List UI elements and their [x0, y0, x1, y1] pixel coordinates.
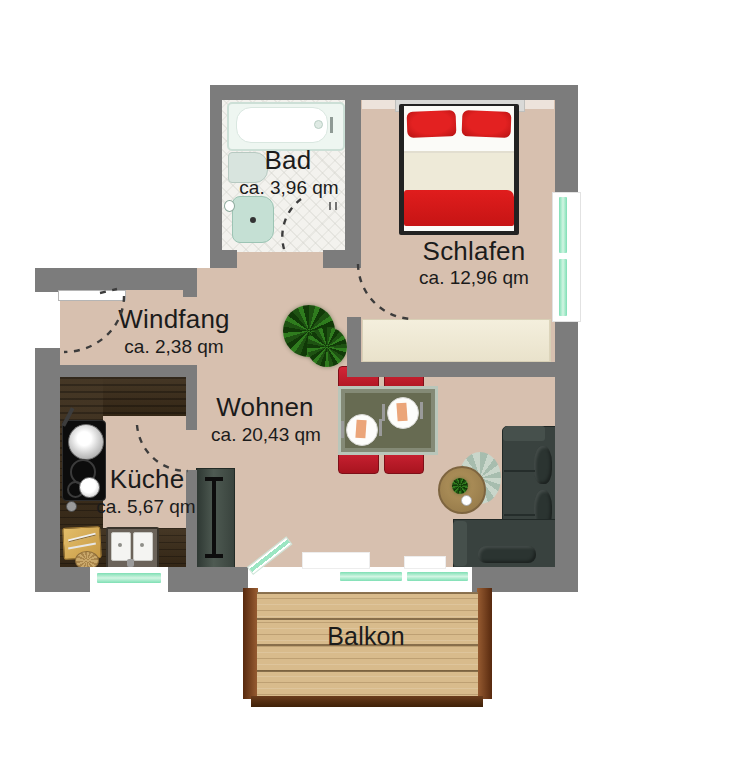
sink-faucet-icon [127, 559, 134, 567]
sliding-panel-2 [404, 556, 446, 569]
bed-pillow-left-icon [407, 110, 457, 138]
bathtub-drain [314, 120, 323, 129]
cutlery-2-left [382, 404, 385, 421]
cup-icon [461, 495, 472, 506]
room-label-schlafen: Schlafen [423, 238, 526, 264]
wall-kitchen-right-lower [186, 470, 197, 592]
floor-plan: Bad ca. 3,96 qm Schlafen ca. 12,96 qm Wi… [0, 0, 729, 757]
room-area-schlafen: ca. 12,96 qm [419, 268, 529, 287]
room-area-wohnen: ca. 20,43 qm [211, 425, 321, 444]
bed-pillow-right-icon [462, 110, 512, 138]
balcony-door-glass-left [340, 572, 402, 581]
sofa-lumbar-pillow [478, 546, 536, 563]
balcony-frame-left [243, 588, 258, 699]
stove-knob [66, 501, 77, 512]
sofa-seat-divider-1 [504, 470, 535, 472]
wall-kitchen-right-upper [186, 377, 197, 430]
bed-sheet [404, 151, 514, 194]
coffee-table-plant-icon [452, 478, 468, 494]
balcony-door-glass-right [407, 572, 468, 581]
entrance-opening [33, 292, 60, 348]
room-area-windfang: ca. 2,38 qm [124, 337, 223, 356]
room-label-kueche: Küche [110, 466, 185, 492]
room-label-bad: Bad [265, 147, 312, 173]
bed-blanket [404, 190, 514, 226]
napkin-2 [396, 403, 407, 422]
cabinet-handle-top [205, 477, 223, 481]
pan-icon [68, 424, 104, 460]
napkin-1 [355, 420, 366, 439]
cabinet-handle-bar [212, 479, 216, 558]
plant-icon-2 [307, 327, 347, 367]
sofa-seat-divider-2 [504, 514, 535, 516]
sink-drain-right [140, 543, 144, 547]
pot-icon [79, 477, 100, 498]
sink-drain-left [118, 543, 122, 547]
sliding-panel [302, 552, 370, 569]
wardrobe [362, 319, 551, 362]
toilet-roll-icon [224, 200, 235, 212]
cabinet-handle-bottom [205, 554, 223, 558]
wall-windfang-top [35, 268, 190, 290]
room-area-bad: ca. 3,96 qm [239, 178, 338, 197]
wall-right [555, 85, 578, 580]
wall-bath-bottom-left [210, 250, 237, 268]
balcony-bottom-bar [251, 696, 483, 707]
wall-bath-left [210, 85, 222, 268]
wall-windfang-stub [183, 268, 197, 297]
room-label-windfang: Windfang [118, 306, 229, 332]
sofa-armrest-left [453, 521, 467, 566]
sofa-armrest-top [503, 426, 545, 441]
wall-bath-bedroom [345, 95, 361, 268]
wall-left-lower [35, 348, 60, 592]
wall-kitchen-top [35, 365, 197, 377]
sofa-back-cushion-1 [534, 446, 552, 484]
kitchen-window-glass [97, 573, 161, 583]
cutlery-1-left [341, 421, 344, 438]
bathtub-faucet-icon [330, 117, 333, 133]
cutlery-2-right [420, 402, 423, 419]
bedroom-window-glass-upper [559, 197, 567, 253]
cutlery-1-right [379, 419, 382, 436]
entrance-door-leaf [58, 290, 126, 301]
bedroom-window-glass-lower [559, 259, 567, 316]
toilet-flush-dot [250, 217, 256, 223]
balcony-frame-right [477, 588, 492, 699]
wall-bedroom-living [347, 362, 556, 377]
room-label-balkon: Balkon [327, 624, 405, 649]
wall-top [210, 85, 578, 100]
room-area-kueche: ca. 5,67 qm [96, 497, 195, 516]
room-label-wohnen: Wohnen [216, 394, 314, 420]
